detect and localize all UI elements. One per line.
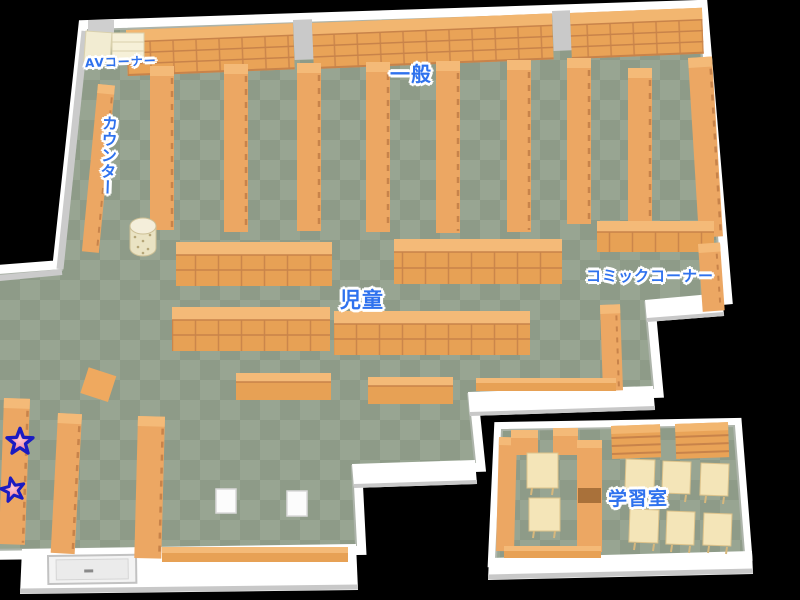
stool: [287, 491, 307, 516]
low-bookshelf: [394, 239, 562, 284]
area-label-general: 一般: [390, 58, 432, 87]
area-label-av-corner: AVコーナー: [85, 52, 157, 71]
low-bookshelf: [172, 307, 330, 351]
general-area-bookshelves: [150, 57, 723, 238]
bookshelf: [224, 64, 248, 232]
low-bookshelf: [176, 242, 332, 286]
area-label-study-room: 学習室: [608, 483, 668, 511]
entrance-door: [48, 555, 136, 584]
display-rack: [130, 218, 156, 256]
bookshelf: [0, 398, 30, 545]
floor-map-canvas: [0, 0, 800, 600]
wall-bookshelf: [675, 422, 729, 459]
area-label-counter: カウンター: [94, 115, 121, 196]
wall-bookshelf: [611, 424, 661, 459]
divider-shelf: [577, 440, 602, 552]
reading-bench: [368, 377, 453, 404]
area-label-children: 児童: [340, 284, 384, 314]
wall-pillar: [293, 19, 314, 60]
low-bookshelf: [162, 547, 348, 562]
study-desk: [700, 463, 729, 496]
bookshelf: [567, 58, 591, 224]
reading-bench: [236, 373, 331, 400]
stool: [216, 489, 236, 513]
bookshelf: [436, 61, 460, 233]
wall-bookshelf: [570, 8, 704, 59]
bookshelf: [507, 60, 531, 232]
door-handle: [84, 569, 93, 572]
study-desk: [666, 511, 695, 545]
divider-opening: [578, 488, 601, 503]
study-desk: [629, 509, 659, 543]
bookshelf: [134, 416, 165, 559]
wall-pillar: [552, 10, 572, 51]
bookshelf: [511, 430, 538, 455]
bookshelf: [553, 428, 578, 455]
bookshelf: [628, 68, 652, 236]
low-bookshelf: [504, 546, 601, 558]
low-bookshelf: [334, 311, 530, 355]
bookshelf: [297, 63, 321, 231]
area-label-comic-corner: コミックコーナー: [586, 265, 714, 286]
low-bookshelf: [476, 378, 616, 391]
study-desk: [703, 513, 732, 546]
study-desk: [529, 498, 560, 531]
bookshelf: [366, 62, 390, 232]
bookshelf: [150, 66, 174, 230]
library-map: AVコーナー 一般 カウンター 児童 コミックコーナー 学習室: [0, 0, 800, 600]
low-bookshelf: [597, 221, 714, 252]
bookshelf: [600, 304, 623, 391]
study-desk: [527, 453, 558, 488]
